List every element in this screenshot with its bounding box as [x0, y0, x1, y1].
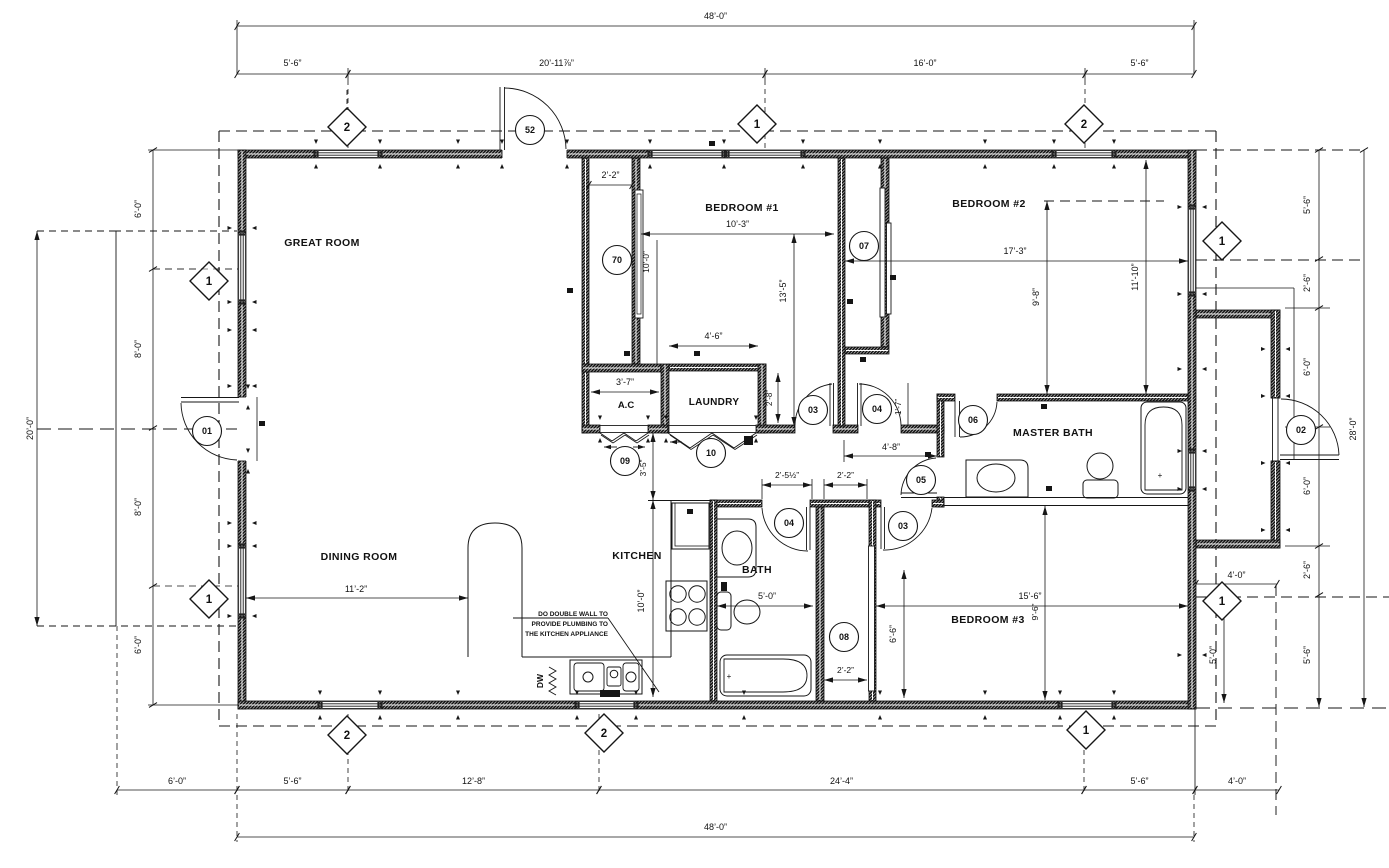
svg-text:1: 1 [1219, 596, 1226, 608]
svg-text:10’-0”: 10’-0” [636, 589, 646, 612]
svg-text:5’-6”: 5’-6” [1130, 776, 1148, 786]
svg-text:5’-6”: 5’-6” [1130, 58, 1148, 68]
svg-text:12’-8”: 12’-8” [462, 776, 485, 786]
svg-text:1: 1 [206, 276, 213, 288]
svg-text:6’-0”: 6’-0” [133, 636, 143, 654]
svg-text:52: 52 [525, 125, 535, 135]
svg-text:04: 04 [872, 404, 882, 414]
svg-text:2’-6”: 2’-6” [1302, 274, 1312, 292]
svg-text:6’-0”: 6’-0” [168, 776, 186, 786]
svg-text:3’-5”: 3’-5” [638, 459, 648, 476]
svg-text:+: + [727, 672, 732, 681]
svg-text:04: 04 [784, 518, 794, 528]
svg-text:48’-0”: 48’-0” [704, 11, 727, 21]
svg-text:BEDROOM #3: BEDROOM #3 [951, 614, 1024, 626]
svg-text:8’-0”: 8’-0” [133, 340, 143, 358]
svg-text:1: 1 [754, 119, 761, 131]
svg-text:6’-6”: 6’-6” [888, 625, 898, 643]
svg-text:KITCHEN: KITCHEN [612, 550, 661, 562]
svg-text:4’-0”: 4’-0” [1227, 570, 1245, 580]
svg-text:+: + [1158, 471, 1163, 480]
svg-text:5’-0”: 5’-0” [758, 591, 776, 601]
svg-text:15’-6”: 15’-6” [1018, 591, 1041, 601]
svg-text:6’-0”: 6’-0” [1302, 477, 1312, 495]
svg-text:06: 06 [968, 415, 978, 425]
svg-text:9’-6”: 9’-6” [1030, 603, 1040, 620]
svg-text:10’-3”: 10’-3” [726, 219, 749, 229]
svg-text:LAUNDRY: LAUNDRY [689, 397, 740, 408]
svg-text:11’-10”: 11’-10” [1130, 263, 1140, 290]
svg-text:1: 1 [206, 594, 213, 606]
svg-text:2’-5½”: 2’-5½” [775, 470, 799, 480]
svg-text:2: 2 [1081, 119, 1087, 131]
svg-text:9’-8”: 9’-8” [1031, 288, 1041, 306]
svg-text:PROVIDE PLUMBING TO: PROVIDE PLUMBING TO [532, 621, 608, 628]
svg-text:01: 01 [202, 426, 212, 436]
svg-text:1: 1 [1083, 725, 1090, 737]
svg-text:13’-5”: 13’-5” [778, 279, 788, 302]
svg-text:DO DOUBLE WALL TO: DO DOUBLE WALL TO [538, 611, 608, 618]
svg-text:BEDROOM #2: BEDROOM #2 [952, 198, 1025, 210]
svg-text:20’-11⅞”: 20’-11⅞” [539, 58, 574, 68]
svg-text:5’-6”: 5’-6” [1302, 646, 1312, 664]
svg-text:5’-6”: 5’-6” [1302, 196, 1312, 214]
svg-text:10: 10 [706, 448, 716, 458]
svg-text:20’-0”: 20’-0” [25, 417, 35, 440]
svg-text:2’-6”: 2’-6” [1302, 561, 1312, 579]
svg-text:BEDROOM #1: BEDROOM #1 [705, 202, 778, 214]
svg-text:4’-8”: 4’-8” [882, 442, 900, 452]
svg-text:6’-0”: 6’-0” [1302, 358, 1312, 376]
svg-text:2: 2 [601, 728, 607, 740]
svg-text:MASTER BATH: MASTER BATH [1013, 427, 1093, 439]
svg-text:3’-7”: 3’-7” [616, 377, 634, 387]
svg-text:03: 03 [898, 521, 908, 531]
svg-text:1: 1 [1219, 236, 1226, 248]
svg-text:8’-0”: 8’-0” [133, 498, 143, 516]
svg-text:24’-4”: 24’-4” [830, 776, 853, 786]
svg-text:2’-2”: 2’-2” [601, 170, 619, 180]
svg-text:17’-3”: 17’-3” [1003, 246, 1026, 256]
svg-text:28’-0”: 28’-0” [1348, 417, 1358, 440]
svg-text:GREAT ROOM: GREAT ROOM [284, 237, 360, 249]
svg-text:4’-0”: 4’-0” [1228, 776, 1246, 786]
svg-text:11’-2”: 11’-2” [345, 584, 367, 594]
svg-text:6’-0”: 6’-0” [133, 200, 143, 218]
svg-text:2’-2”: 2’-2” [837, 470, 854, 480]
svg-text:2: 2 [344, 730, 350, 742]
svg-text:09: 09 [620, 456, 630, 466]
svg-text:02: 02 [1296, 425, 1306, 435]
svg-text:DW: DW [535, 673, 545, 688]
svg-text:2’-2”: 2’-2” [837, 665, 854, 675]
svg-text:A.C: A.C [618, 400, 635, 411]
svg-text:07: 07 [859, 241, 869, 251]
svg-text:5’-6”: 5’-6” [283, 776, 301, 786]
svg-text:1’-7”: 1’-7” [894, 399, 903, 415]
svg-text:2’-8”: 2’-8” [765, 390, 774, 406]
svg-text:THE KITCHEN APPLIANCE: THE KITCHEN APPLIANCE [525, 631, 608, 638]
svg-text:DINING ROOM: DINING ROOM [321, 551, 398, 563]
svg-text:03: 03 [808, 405, 818, 415]
svg-text:5’-0”: 5’-0” [1208, 646, 1218, 664]
svg-text:BATH: BATH [742, 564, 772, 576]
svg-text:10’-0”: 10’-0” [641, 251, 651, 273]
svg-text:4’-6”: 4’-6” [704, 331, 722, 341]
svg-text:70: 70 [612, 255, 622, 265]
svg-text:5’-6”: 5’-6” [283, 58, 301, 68]
svg-text:48’-0”: 48’-0” [704, 822, 727, 832]
svg-text:16’-0”: 16’-0” [913, 58, 936, 68]
svg-text:05: 05 [916, 475, 926, 485]
svg-text:2: 2 [344, 122, 350, 134]
svg-text:08: 08 [839, 632, 849, 642]
